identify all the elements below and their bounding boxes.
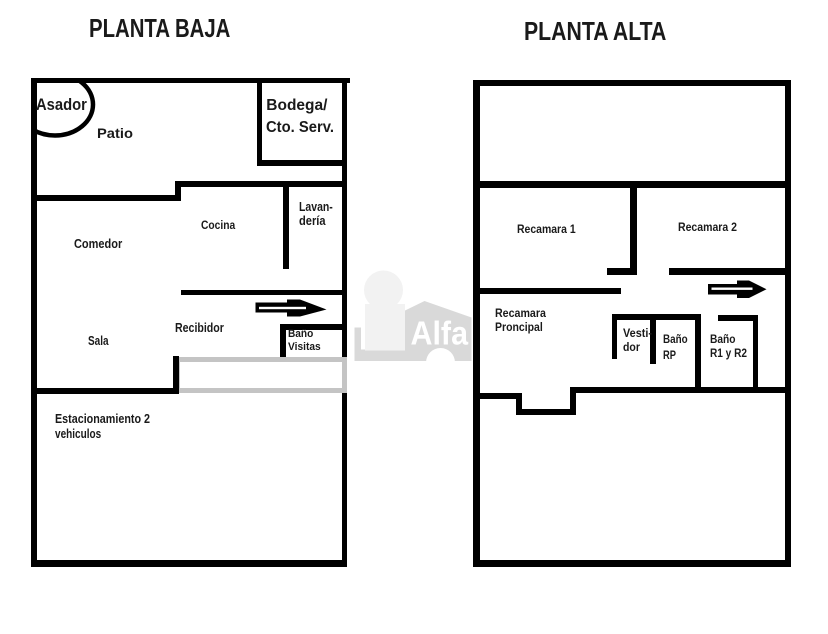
svg-text:Alfa: Alfa [411,315,469,352]
